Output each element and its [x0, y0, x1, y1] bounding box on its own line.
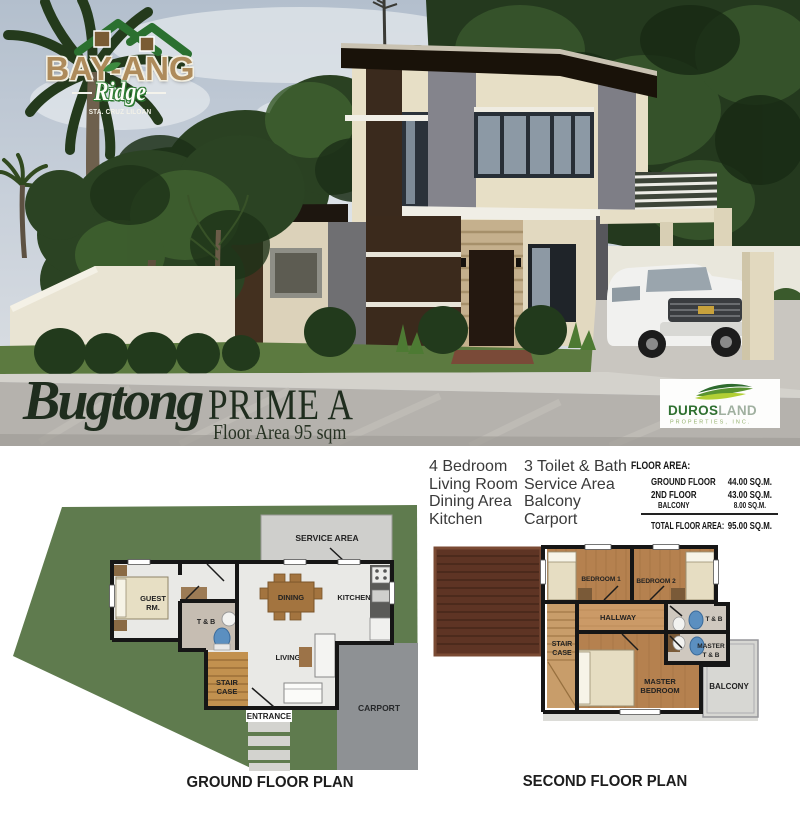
svg-text:CASE: CASE [552, 650, 572, 657]
svg-text:DUROSLAND: DUROSLAND [668, 403, 757, 418]
svg-text:KITCHEN: KITCHEN [337, 593, 370, 602]
svg-text:BEDROOM 1: BEDROOM 1 [581, 576, 621, 583]
svg-text:GUEST: GUEST [140, 594, 166, 603]
svg-text:CARPORT: CARPORT [358, 703, 401, 713]
svg-text:HALLWAY: HALLWAY [600, 613, 636, 622]
svg-text:MASTER: MASTER [697, 643, 725, 650]
svg-text:ENTRANCE: ENTRANCE [247, 712, 292, 721]
svg-text:CASE: CASE [217, 687, 238, 696]
svg-text:MASTER: MASTER [644, 677, 676, 686]
svg-text:STAIR: STAIR [216, 678, 239, 687]
svg-text:STAIR: STAIR [552, 641, 572, 648]
svg-text:T & B: T & B [706, 616, 723, 623]
svg-text:PROPERTIES, INC.: PROPERTIES, INC. [670, 420, 751, 426]
svg-text:DINING: DINING [278, 593, 304, 602]
svg-text:T & B: T & B [197, 619, 215, 626]
svg-text:BEDROOM 2: BEDROOM 2 [636, 578, 676, 585]
svg-text:LIVING: LIVING [275, 653, 300, 662]
svg-text:T & B: T & B [703, 652, 720, 659]
svg-text:SERVICE AREA: SERVICE AREA [295, 533, 358, 543]
svg-text:RM.: RM. [146, 603, 160, 612]
svg-text:BEDROOM: BEDROOM [640, 686, 679, 695]
svg-text:BALCONY: BALCONY [709, 682, 749, 691]
